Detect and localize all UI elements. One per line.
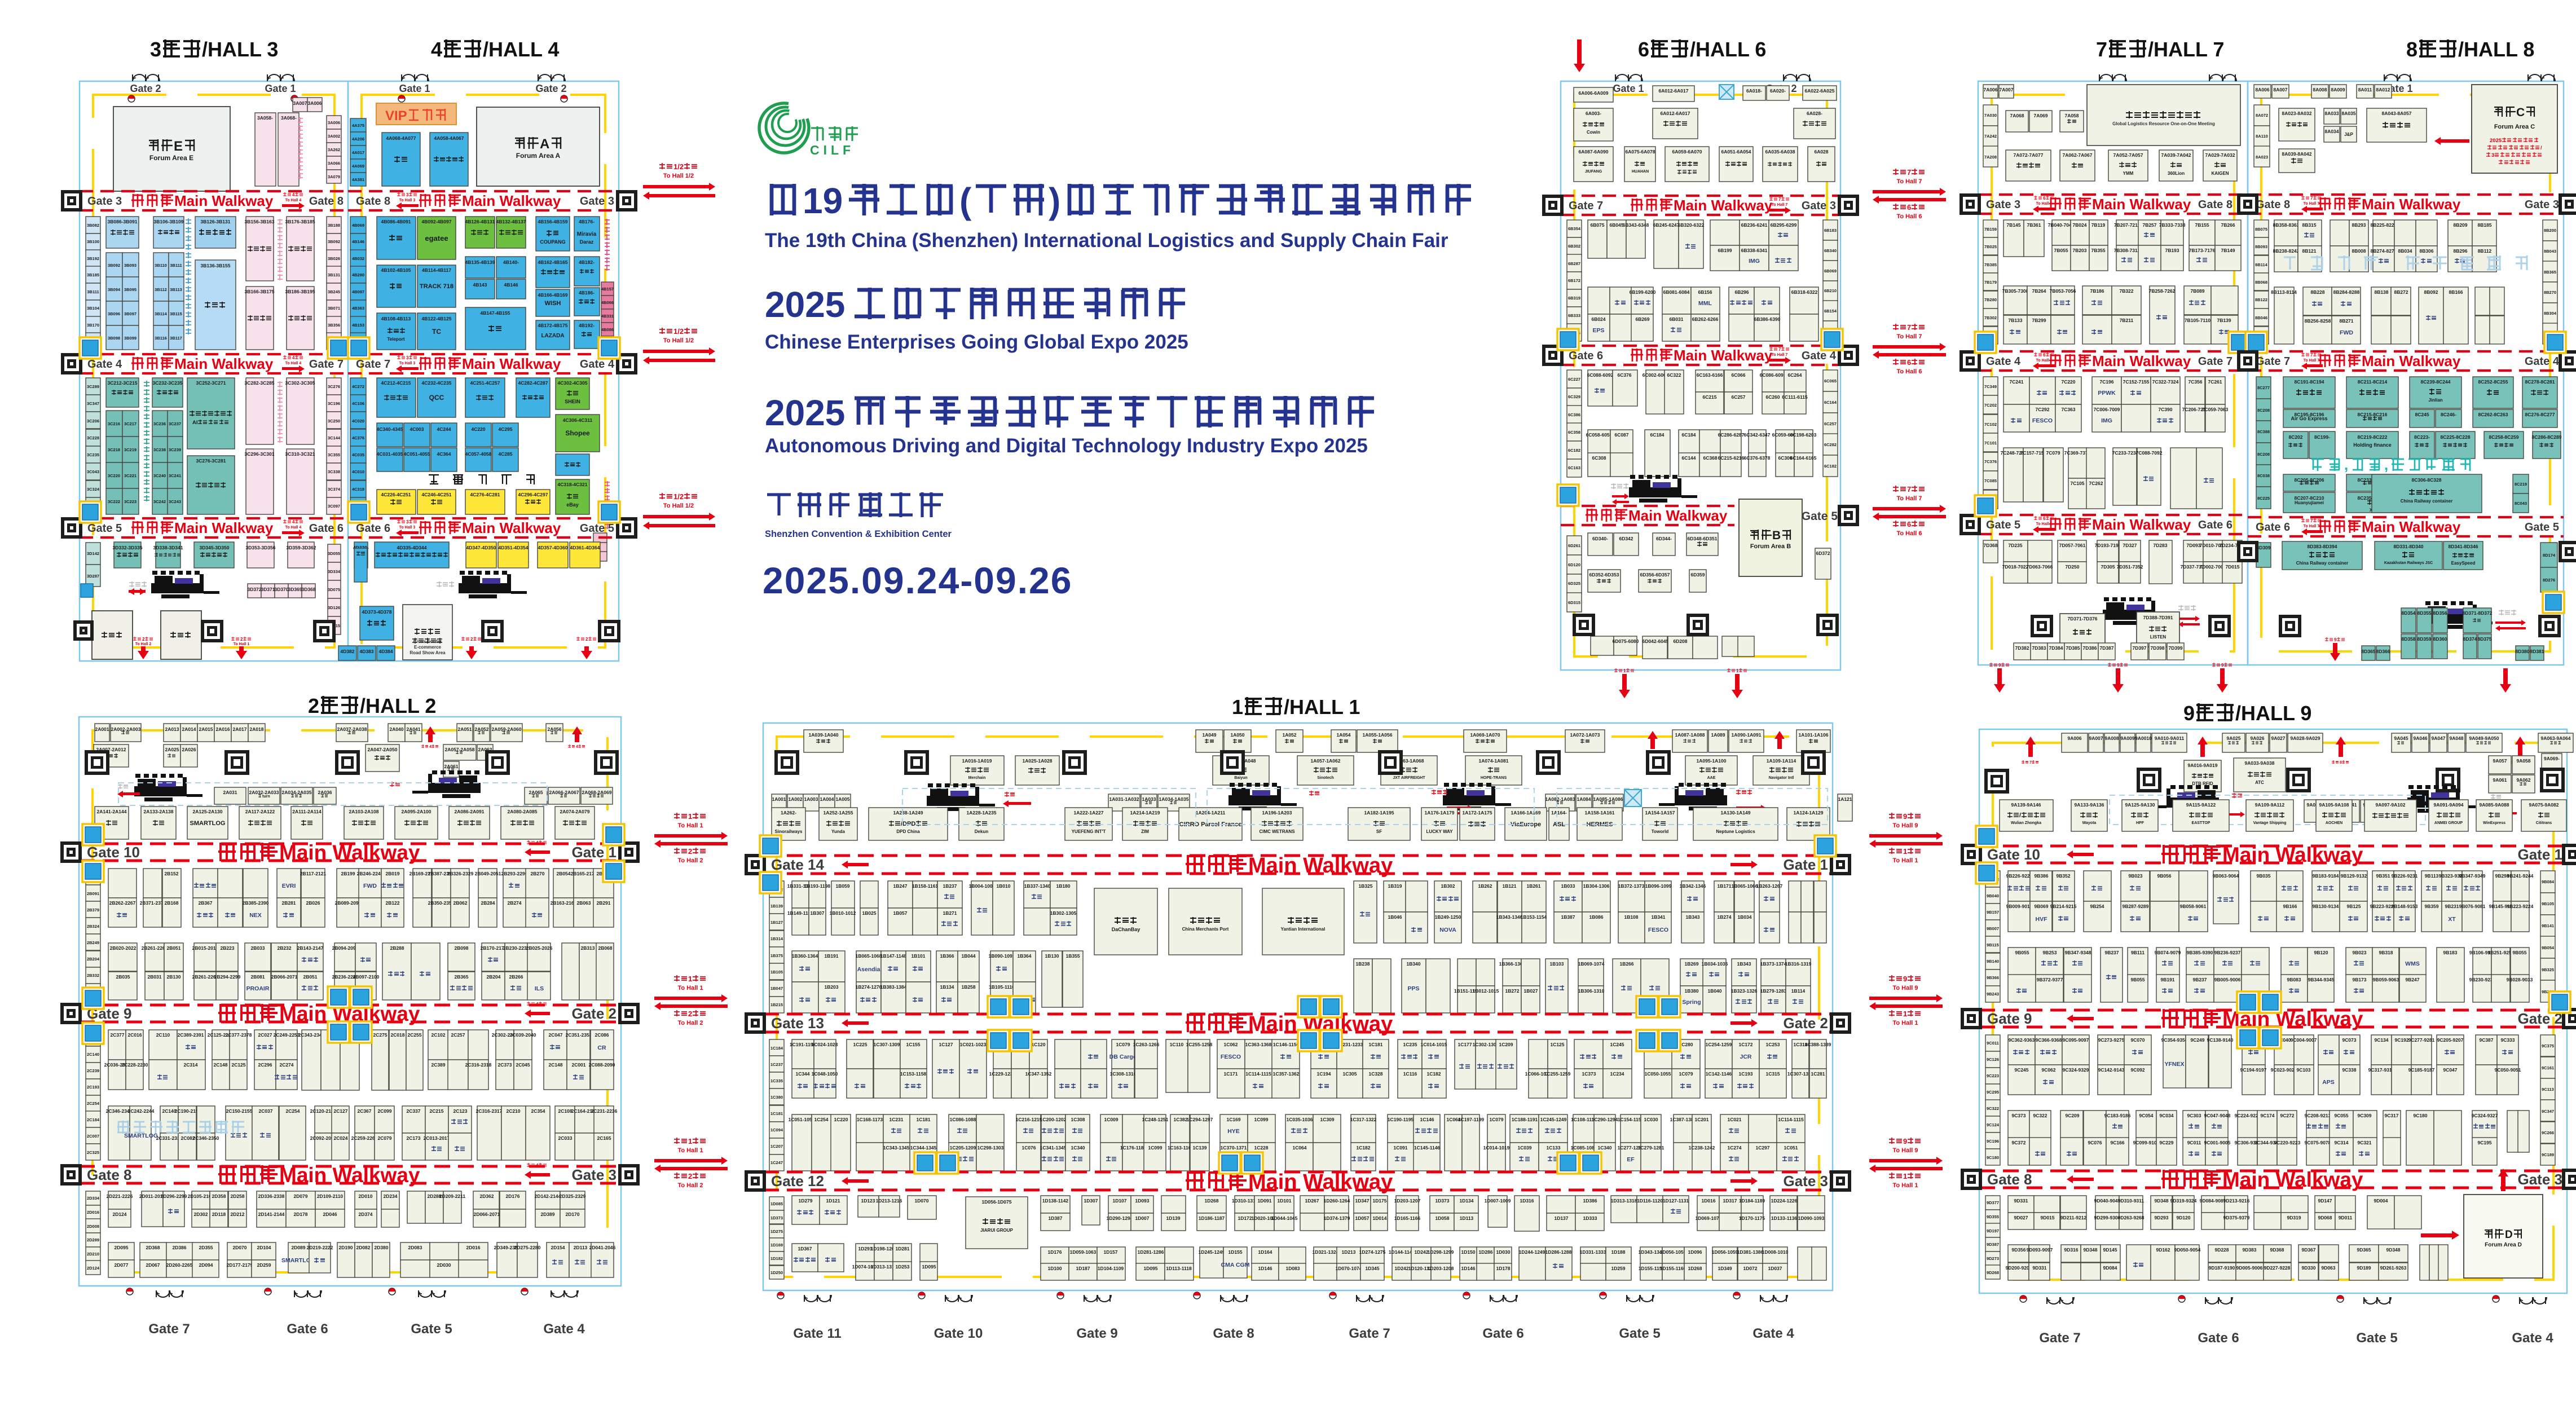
svg-text:To Hall 2: To Hall 2 <box>677 857 703 864</box>
svg-text:1A252-1A255: 1A252-1A255 <box>824 810 853 816</box>
svg-text:4B153: 4B153 <box>352 323 364 328</box>
svg-text:Main Walkway: Main Walkway <box>2222 843 2363 866</box>
svg-text:2B097-2100: 2B097-2100 <box>353 974 380 980</box>
svg-text:1B134: 1B134 <box>940 984 954 990</box>
svg-text:9C142-9143: 9C142-9143 <box>2098 1067 2125 1073</box>
svg-text:7A208: 7A208 <box>1984 155 1997 160</box>
svg-text:1C039: 1C039 <box>1517 1145 1531 1151</box>
svg-text:9A016-9A019: 9A016-9A019 <box>2188 763 2218 768</box>
svg-text:1C133: 1C133 <box>1546 1145 1560 1151</box>
svg-text:EF: EF <box>1627 1156 1635 1163</box>
svg-text:TC: TC <box>432 328 441 336</box>
svg-text:9D348: 9D348 <box>2386 1247 2400 1253</box>
svg-text:2B054: 2B054 <box>556 871 570 876</box>
svg-text:1D016: 1D016 <box>1701 1198 1715 1204</box>
svg-text:6: 6 <box>1907 203 1911 211</box>
svg-text:4C276-4C281: 4C276-4C281 <box>470 492 500 497</box>
svg-text:3D370: 3D370 <box>274 587 288 592</box>
svg-text:1C254: 1C254 <box>814 1117 828 1122</box>
svg-text:1D123: 1D123 <box>861 1198 875 1204</box>
svg-text:1B010-1012: 1B010-1012 <box>830 910 856 916</box>
svg-text:1C388-1389: 1C388-1389 <box>1805 1042 1831 1047</box>
svg-text:3B093: 3B093 <box>124 263 136 268</box>
svg-text:2025: 2025 <box>2490 138 2502 144</box>
svg-text:1/2: 1/2 <box>673 327 684 336</box>
svg-text:8D365: 8D365 <box>2361 649 2375 654</box>
svg-text:9C387: 9C387 <box>2479 1037 2493 1043</box>
svg-text:1C245-1249: 1C245-1249 <box>1540 1117 1567 1122</box>
svg-text:7C349: 7C349 <box>1984 384 1997 389</box>
svg-text:1C315: 1C315 <box>1765 1071 1780 1077</box>
svg-text:1C181: 1C181 <box>770 1111 783 1116</box>
svg-text:6C286-6287: 6C286-6287 <box>1718 432 1745 438</box>
svg-text:Gate 4: Gate 4 <box>580 358 615 371</box>
svg-text:8B270: 8B270 <box>2544 290 2556 295</box>
svg-text:6B199-6200: 6B199-6200 <box>1630 289 1656 295</box>
svg-text:7A006: 7A006 <box>1983 87 1997 92</box>
svg-text:1D178: 1D178 <box>1496 1266 1510 1271</box>
svg-text:3C206: 3C206 <box>87 418 99 424</box>
svg-text:2C254: 2C254 <box>285 1108 300 1114</box>
svg-text:1B191: 1B191 <box>824 953 838 959</box>
svg-text:6D325: 6D325 <box>1568 581 1580 586</box>
svg-text:1D182: 1D182 <box>770 1256 783 1261</box>
svg-text:1B114: 1B114 <box>1791 988 1806 994</box>
svg-text:8B209: 8B209 <box>2453 222 2467 228</box>
svg-text:1B355: 1B355 <box>1065 953 1080 959</box>
svg-text:7B280: 7B280 <box>1984 297 1997 302</box>
svg-text:2B025-2026: 2B025-2026 <box>526 945 553 951</box>
svg-text:1D184-1189: 1D184-1189 <box>1739 1198 1765 1204</box>
svg-text:2A001: 2A001 <box>95 726 109 732</box>
svg-text:3B095: 3B095 <box>124 287 136 292</box>
svg-text:2: 2 <box>688 1172 692 1180</box>
svg-text:Gate 3: Gate 3 <box>580 195 614 208</box>
svg-text:1B274: 1B274 <box>1717 914 1731 920</box>
svg-text:6C376: 6C376 <box>1617 372 1631 378</box>
svg-text:3: 3 <box>406 355 409 360</box>
svg-text:8B304: 8B304 <box>2544 311 2557 316</box>
svg-text:1B047: 1B047 <box>770 986 783 991</box>
svg-text:6C215-6216: 6C215-6216 <box>1718 455 1745 461</box>
svg-text:/HALL 8: /HALL 8 <box>2458 38 2534 61</box>
svg-text:1A087-1A088: 1A087-1A088 <box>1675 732 1705 738</box>
svg-text:2C389-2391: 2C389-2391 <box>178 1032 204 1038</box>
svg-text:1C177: 1C177 <box>1457 1042 1472 1047</box>
svg-text:2C373: 2C373 <box>497 1062 512 1068</box>
svg-text:9B125: 9B125 <box>2346 904 2361 909</box>
svg-text:LISTEN: LISTEN <box>2150 634 2167 640</box>
svg-text:1D387: 1D387 <box>1048 1215 1062 1221</box>
svg-text:A: A <box>540 136 549 152</box>
svg-text:1B034: 1B034 <box>1737 914 1751 920</box>
svg-text:Air Go Express: Air Go Express <box>2291 416 2327 421</box>
svg-text:/HALL 7: /HALL 7 <box>2148 38 2224 61</box>
svg-text:1C341-1345: 1C341-1345 <box>1040 1145 1067 1151</box>
svg-text:3C212-3C215: 3C212-3C215 <box>108 380 138 386</box>
svg-text:7B024: 7B024 <box>2072 222 2086 228</box>
svg-text:2D030: 2D030 <box>437 1262 451 1268</box>
svg-text:7: 7 <box>1907 485 1911 493</box>
svg-text:9A063-9A064: 9A063-9A064 <box>2541 735 2571 741</box>
svg-text:8C223-: 8C223- <box>2414 434 2430 440</box>
svg-text:3B092: 3B092 <box>108 263 120 268</box>
svg-text:1B046: 1B046 <box>1388 914 1402 920</box>
svg-text:9D211-9212: 9D211-9212 <box>2060 1215 2087 1220</box>
svg-text:3C347: 3C347 <box>87 401 99 406</box>
svg-text:8A012: 8A012 <box>2376 87 2390 92</box>
svg-text:2B163-2164: 2B163-2164 <box>551 900 577 906</box>
svg-text:2A040: 2A040 <box>389 726 403 732</box>
svg-text:HOPE-TRANS: HOPE-TRANS <box>1481 776 1507 780</box>
svg-text:1: 1 <box>1903 847 1907 856</box>
svg-text:Gate 8: Gate 8 <box>87 1166 132 1183</box>
svg-text:1D127-1131: 1D127-1131 <box>1663 1198 1689 1204</box>
svg-text:2B223: 2B223 <box>220 945 234 951</box>
svg-text:2B089-2094: 2B089-2094 <box>335 900 362 906</box>
svg-text:FESCO: FESCO <box>1648 927 1668 933</box>
svg-text:9C062: 9C062 <box>2041 1067 2055 1073</box>
svg-text:8C219-8C222: 8C219-8C222 <box>2358 434 2388 440</box>
svg-text:2D178: 2D178 <box>293 1211 307 1217</box>
svg-text:8D375: 8D375 <box>2477 636 2491 642</box>
svg-text:Jinlian: Jinlian <box>2428 398 2442 403</box>
svg-text:1C035-1036: 1C035-1036 <box>1287 1117 1313 1122</box>
svg-text:1D093: 1D093 <box>1135 1198 1149 1204</box>
svg-text:9: 9 <box>2117 663 2120 668</box>
svg-text:7A058: 7A058 <box>2064 113 2079 118</box>
svg-text:2B098: 2B098 <box>454 945 468 951</box>
svg-text:8B296: 8B296 <box>2453 248 2467 254</box>
svg-text:4C212-4C215: 4C212-4C215 <box>381 380 411 386</box>
svg-text:HPF: HPF <box>2136 821 2145 825</box>
svg-text:6C376-6378: 6C376-6378 <box>1744 455 1771 461</box>
svg-text:Gate 3: Gate 3 <box>87 195 122 208</box>
svg-text:6C329: 6C329 <box>1568 394 1580 399</box>
svg-text:4: 4 <box>292 192 295 197</box>
svg-text:To Hall 2: To Hall 2 <box>677 1182 703 1189</box>
svg-text:1C114-1115: 1C114-1115 <box>1778 1117 1804 1122</box>
svg-text:Main Walkway: Main Walkway <box>1674 347 1773 364</box>
svg-text:8B075: 8B075 <box>2255 227 2267 232</box>
svg-text:Gate 5: Gate 5 <box>2356 1330 2397 1346</box>
svg-text:4B147-4B155: 4B147-4B155 <box>481 310 510 316</box>
svg-text:1C120: 1C120 <box>1031 1042 1045 1047</box>
svg-text:2C316-2318: 2C316-2318 <box>465 1062 492 1068</box>
svg-text:1A109-1A114: 1A109-1A114 <box>1767 758 1796 764</box>
svg-text:4D357-4D360: 4D357-4D360 <box>538 545 568 550</box>
svg-text:1B383-1384: 1B383-1384 <box>880 984 907 990</box>
svg-text:9D293: 9D293 <box>2154 1215 2168 1220</box>
svg-text:6C066: 6C066 <box>1731 372 1745 378</box>
svg-text:4A375: 4A375 <box>352 123 364 128</box>
svg-text:9B130-9134: 9B130-9134 <box>2313 904 2339 909</box>
svg-text:7D382: 7D382 <box>2015 645 2029 651</box>
svg-text:1C328: 1C328 <box>1368 1071 1382 1077</box>
svg-text:4B146: 4B146 <box>352 239 364 244</box>
svg-text:1B105: 1B105 <box>770 969 783 975</box>
svg-text:7C376: 7C376 <box>1984 459 1997 464</box>
svg-text:9B129-9132: 9B129-9132 <box>2341 873 2367 879</box>
svg-text:Gate 4: Gate 4 <box>87 358 122 371</box>
svg-text:6D344-: 6D344- <box>1656 536 1672 541</box>
svg-text:To Hall 6: To Hall 6 <box>2036 522 2053 526</box>
svg-text:6A012-6A017: 6A012-6A017 <box>1661 111 1690 116</box>
svg-text:9B372-9377: 9B372-9377 <box>2037 977 2063 982</box>
svg-text:1D164: 1D164 <box>1258 1249 1272 1255</box>
svg-text:9B074-9079: 9B074-9079 <box>2155 950 2181 955</box>
svg-text:1B034-1035: 1B034-1035 <box>1702 961 1728 967</box>
svg-text:2B230-2231: 2B230-2231 <box>503 945 530 951</box>
svg-text:3A058-: 3A058- <box>257 115 273 121</box>
svg-text:AI: AI <box>192 420 198 426</box>
svg-text:1D331-1333: 1D331-1333 <box>1580 1249 1606 1255</box>
svg-text:9B183-9184: 9B183-9184 <box>2313 873 2339 879</box>
svg-text:CMA CGM: CMA CGM <box>1221 1262 1250 1268</box>
svg-text:3C296-3C301: 3C296-3C301 <box>245 451 275 457</box>
svg-text:9A109-9A112: 9A109-9A112 <box>2255 802 2285 808</box>
svg-text:2B385-2390: 2B385-2390 <box>243 900 269 906</box>
svg-text:1D242: 1D242 <box>1414 1249 1428 1255</box>
svg-text:1B307: 1B307 <box>810 910 824 916</box>
svg-text:Gate 3: Gate 3 <box>572 1166 617 1183</box>
svg-text:8D359: 8D359 <box>2417 636 2431 642</box>
svg-text:1B065-1068: 1B065-1068 <box>856 953 882 959</box>
svg-text:3B114: 3B114 <box>155 311 168 316</box>
svg-text:Gate 7: Gate 7 <box>1569 200 1603 212</box>
svg-text:6D120: 6D120 <box>1568 562 1580 567</box>
svg-text:9: 9 <box>1903 1137 1907 1145</box>
svg-text:9C277-9281: 9C277-9281 <box>2408 1037 2435 1043</box>
svg-text:9A026: 9A026 <box>2250 735 2264 741</box>
svg-text:1D007: 1D007 <box>1135 1215 1149 1221</box>
svg-text:Main Walkway: Main Walkway <box>1628 507 1728 524</box>
svg-text:6B236-6241: 6B236-6241 <box>1741 222 1768 228</box>
svg-text:APS: APS <box>2322 1079 2335 1086</box>
svg-text:3B112: 3B112 <box>155 287 167 292</box>
svg-text:9B241-9244: 9B241-9244 <box>2507 873 2534 879</box>
svg-text:9D273: 9D273 <box>1987 1256 1999 1261</box>
svg-text:8D380: 8D380 <box>2515 649 2529 654</box>
svg-text:1C197-1199: 1C197-1199 <box>1458 1117 1485 1122</box>
svg-text:/HALL 2: /HALL 2 <box>360 694 436 717</box>
svg-text:2C108: 2C108 <box>558 1108 572 1114</box>
svg-text:9B226-9231: 9B226-9231 <box>2392 873 2418 879</box>
svg-text:XT: XT <box>2448 916 2456 923</box>
svg-text:4B166-4B169: 4B166-4B169 <box>538 292 568 298</box>
svg-text:1B314: 1B314 <box>770 936 783 941</box>
svg-text:1C110: 1C110 <box>1170 1042 1184 1047</box>
svg-text:1D170-1175: 1D170-1175 <box>1739 1215 1765 1221</box>
svg-text:1: 1 <box>688 975 692 983</box>
svg-text:6A018-: 6A018- <box>1746 88 1762 94</box>
svg-text:9D355: 9D355 <box>1987 1214 1999 1219</box>
svg-text:6C264: 6C264 <box>1787 372 1802 378</box>
svg-text:19: 19 <box>803 180 843 221</box>
svg-text:9B347-9348: 9B347-9348 <box>2065 950 2091 955</box>
svg-text:1: 1 <box>1736 668 1739 673</box>
svg-text:9D004: 9D004 <box>2374 1198 2388 1204</box>
svg-text:7C196: 7C196 <box>2099 379 2113 385</box>
svg-text:2D296-2299: 2D296-2299 <box>161 1193 187 1199</box>
svg-text:8B046: 8B046 <box>2255 315 2267 320</box>
svg-text:6C163: 6C163 <box>1568 465 1580 470</box>
svg-text:9D365: 9D365 <box>2357 1247 2371 1253</box>
svg-text:7C085: 7C085 <box>1984 478 1997 483</box>
svg-text:3B245: 3B245 <box>328 289 340 294</box>
svg-text:3C236: 3C236 <box>153 421 166 426</box>
svg-text:To Hall 6: To Hall 6 <box>2036 202 2053 206</box>
svg-text:3B170: 3B170 <box>87 323 99 328</box>
svg-text:Gate 8: Gate 8 <box>309 195 344 208</box>
svg-text:1A182-1A195: 1A182-1A195 <box>1364 810 1394 816</box>
svg-text:1D007-1009: 1D007-1009 <box>1485 1198 1511 1204</box>
svg-text:7: 7 <box>2310 518 2313 523</box>
svg-text:8D276: 8D276 <box>2543 578 2555 583</box>
svg-text:9C208-9213: 9C208-9213 <box>2305 1113 2331 1118</box>
svg-text:6C368: 6C368 <box>1703 455 1717 461</box>
svg-text:7D386: 7D386 <box>2082 645 2097 651</box>
svg-text:6A022-6A025: 6A022-6A025 <box>1805 88 1835 94</box>
svg-text:8D309: 8D309 <box>2256 545 2270 550</box>
svg-text:9C322: 9C322 <box>2033 1113 2047 1118</box>
svg-text:2025: 2025 <box>765 393 845 433</box>
svg-text:1B323-1326: 1B323-1326 <box>1731 988 1758 994</box>
svg-text:3: 3 <box>150 38 161 61</box>
svg-text:1C340: 1C340 <box>1071 1145 1085 1151</box>
svg-text:360Lion: 360Lion <box>2168 171 2185 176</box>
svg-text:Gate 9: Gate 9 <box>1076 1326 1117 1341</box>
svg-text:1A003: 1A003 <box>804 796 818 802</box>
svg-text:2B015-2017: 2B015-2017 <box>192 945 219 951</box>
svg-text:1A031-1A032: 1A031-1A032 <box>1109 796 1139 802</box>
svg-text:3D334: 3D334 <box>328 569 341 574</box>
svg-text:1C290-1294: 1C290-1294 <box>1592 1117 1618 1122</box>
svg-text:3C218: 3C218 <box>108 447 120 452</box>
svg-text:7C088-7092: 7C088-7092 <box>2136 450 2163 456</box>
svg-text:To Hall 7: To Hall 7 <box>2304 202 2320 206</box>
svg-text:2D259: 2D259 <box>257 1262 271 1268</box>
svg-text:1C382: 1C382 <box>1173 1117 1187 1122</box>
svg-text:8B122: 8B122 <box>2255 297 2267 302</box>
svg-text:4C318: 4C318 <box>352 487 364 492</box>
svg-text:Miravia: Miravia <box>577 231 597 237</box>
svg-text:9C034: 9C034 <box>2159 1113 2173 1118</box>
svg-text:8C278-8C281: 8C278-8C281 <box>2525 379 2555 385</box>
svg-text:3C276-3C281: 3C276-3C281 <box>196 458 226 464</box>
svg-text:1B040: 1B040 <box>1707 988 1721 994</box>
svg-text:8C225-8C228: 8C225-8C228 <box>2441 434 2471 440</box>
svg-text:2C193: 2C193 <box>87 1085 99 1090</box>
svg-text:2C239: 2C239 <box>87 1068 99 1073</box>
svg-text:CR: CR <box>597 1045 606 1051</box>
svg-text:2B293-2296: 2B293-2296 <box>501 871 528 876</box>
svg-text:8B293: 8B293 <box>2352 222 2366 228</box>
svg-text:1D242: 1D242 <box>1394 1266 1408 1271</box>
svg-text:3A066: 3A066 <box>328 161 340 166</box>
svg-text:9C194-9197: 9C194-9197 <box>2240 1067 2267 1073</box>
svg-text:1/2: 1/2 <box>673 492 684 501</box>
svg-text:1D281-1286: 1D281-1286 <box>1138 1249 1164 1255</box>
svg-text:2C016: 2C016 <box>127 1032 142 1038</box>
svg-text:7B302: 7B302 <box>1984 315 1997 320</box>
svg-text:2C086: 2C086 <box>595 1032 609 1038</box>
svg-text:To Hall 1/2: To Hall 1/2 <box>663 173 694 179</box>
svg-text:Gate 5: Gate 5 <box>580 522 614 535</box>
svg-text:7C220: 7C220 <box>2061 379 2075 385</box>
svg-text:8D355: 8D355 <box>2417 610 2431 616</box>
svg-text:3B110: 3B110 <box>155 263 167 268</box>
svg-text:2B249: 2B249 <box>87 940 99 945</box>
svg-text:1C255-1259: 1C255-1259 <box>1544 1071 1571 1077</box>
svg-text:3C232-3C235: 3C232-3C235 <box>153 380 183 386</box>
svg-text:1C235: 1C235 <box>1403 1042 1417 1047</box>
svg-text:Gate 6: Gate 6 <box>287 1321 328 1337</box>
svg-text:1C094: 1C094 <box>770 1127 783 1132</box>
svg-text:2C215: 2C215 <box>429 1108 443 1114</box>
svg-text:6B024: 6B024 <box>1591 316 1605 322</box>
svg-text:3C239: 3C239 <box>169 447 181 452</box>
svg-text:9D331: 9D331 <box>2014 1198 2028 1204</box>
svg-text:9B040: 9B040 <box>1987 893 1999 898</box>
svg-text:2: 2 <box>688 1010 692 1018</box>
svg-text:2C024: 2C024 <box>333 1135 347 1141</box>
svg-text:2C351-2353: 2C351-2353 <box>566 1032 592 1038</box>
svg-text:6C322: 6C322 <box>1667 372 1681 378</box>
svg-text:Gate 11: Gate 11 <box>793 1326 841 1341</box>
svg-text:2C228-2230: 2C228-2230 <box>122 1062 148 1068</box>
svg-text:3B094: 3B094 <box>108 287 121 292</box>
svg-text:9C185-9187: 9C185-9187 <box>2408 1067 2435 1073</box>
svg-text:1D104-1109: 1D104-1109 <box>1098 1266 1124 1271</box>
svg-text:9C070: 9C070 <box>2130 1037 2145 1043</box>
svg-text:Main Walkway: Main Walkway <box>2362 352 2461 369</box>
svg-text:6C058-6059: 6C058-6059 <box>1586 432 1613 438</box>
svg-text:9C124: 9C124 <box>1987 1122 2000 1127</box>
svg-text:6B081-6084: 6B081-6084 <box>1663 289 1690 295</box>
svg-text:3B071: 3B071 <box>328 306 340 311</box>
svg-text:7D015: 7D015 <box>2225 564 2239 570</box>
svg-text:9B236-9237: 9B236-9237 <box>2214 950 2241 955</box>
svg-text:8: 8 <box>2406 38 2418 61</box>
svg-text:4B108-4B113: 4B108-4B113 <box>381 316 411 321</box>
svg-text:1D146: 1D146 <box>1258 1266 1272 1271</box>
svg-text:8D356: 8D356 <box>2433 610 2447 616</box>
svg-text:2D177-2179: 2D177-2179 <box>227 1262 253 1268</box>
svg-text:1C176-1180: 1C176-1180 <box>1120 1145 1147 1151</box>
svg-text:4C340-4345: 4C340-4345 <box>377 426 403 432</box>
svg-text:1C209: 1C209 <box>1499 1042 1513 1047</box>
svg-text:6C086-6091: 6C086-6091 <box>1760 372 1786 378</box>
svg-text:9B359: 9B359 <box>2424 904 2438 909</box>
svg-text:4: 4 <box>292 355 295 360</box>
svg-text:9D299-9304: 9D299-9304 <box>2094 1215 2121 1220</box>
svg-text:9C338: 9C338 <box>2342 1067 2356 1073</box>
svg-text:1A154-1A157: 1A154-1A157 <box>1645 810 1675 816</box>
svg-text:1B059: 1B059 <box>835 883 849 889</box>
svg-text:3C222: 3C222 <box>108 499 120 504</box>
svg-text:1A101-1A106: 1A101-1A106 <box>1799 732 1829 738</box>
svg-text:2: 2 <box>688 847 692 856</box>
svg-text:Neptune Logistics: Neptune Logistics <box>1716 829 1755 834</box>
svg-text:2A095-2A100: 2A095-2A100 <box>402 809 431 814</box>
svg-text:7: 7 <box>2096 38 2107 61</box>
svg-text:2A141-2A144: 2A141-2A144 <box>97 809 127 814</box>
svg-text:2A051: 2A051 <box>457 726 472 732</box>
svg-text:2C099: 2C099 <box>377 1108 391 1114</box>
svg-text:Cititrans: Cititrans <box>2536 821 2552 825</box>
svg-text:1B004-1008: 1B004-1008 <box>969 883 996 889</box>
